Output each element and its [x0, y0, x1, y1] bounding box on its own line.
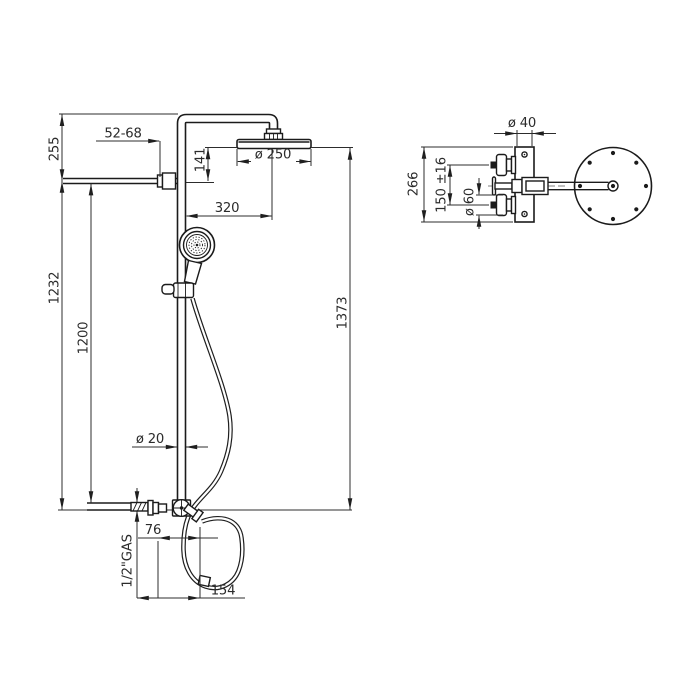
valve-handle-top: [491, 155, 516, 176]
dim-wall-distance-range: 52-68: [104, 127, 141, 142]
dim-head-center-offset: 320: [215, 201, 240, 216]
technical-drawing-canvas: 255 1232 1200 1373 141 1/2"GAS 52-68 ø 2…: [0, 0, 700, 700]
dim-slide-rail-height: 1200: [77, 322, 92, 355]
dim-pipe-diameter: ø 20: [136, 432, 164, 447]
arm-union-body: [163, 173, 176, 189]
front-view-dimensions: 255 1232 1200 1373 141 1/2"GAS 52-68 ø 2…: [48, 114, 354, 599]
shower-hose: [183, 299, 242, 589]
front-view: [58, 115, 352, 589]
arm-mount-assembly: [493, 177, 549, 195]
dim-arm-to-inlet-height: 1232: [48, 272, 63, 305]
dim-inlet-to-axis: 76: [145, 523, 161, 538]
dim-inlet-to-outlet: 154: [211, 584, 236, 599]
side-view: [488, 147, 652, 225]
dim-head-diameter: ø 250: [255, 148, 291, 163]
hand-shower-handle: [185, 261, 202, 285]
valve-handle-bottom: [491, 195, 516, 216]
dim-handle-spacing: 150 ±16: [435, 157, 450, 213]
slider-holder: [162, 283, 194, 298]
dim-total-height: 1373: [336, 297, 351, 330]
shower-column-technical-drawing: 255 1232 1200 1373 141 1/2"GAS 52-68 ø 2…: [0, 0, 700, 700]
dim-top-offset: 255: [48, 137, 63, 162]
head-connector-nut: [265, 129, 283, 140]
dim-inlet-thread: 1/2"GAS: [121, 534, 136, 588]
dim-head-to-arm: 141: [194, 148, 209, 173]
slider-knob: [162, 285, 174, 295]
dim-wall-bar-height: 266: [407, 172, 422, 197]
dim-escutcheon-diameter: ø 60: [463, 188, 478, 216]
dim-wall-bar-width: ø 40: [508, 116, 536, 131]
